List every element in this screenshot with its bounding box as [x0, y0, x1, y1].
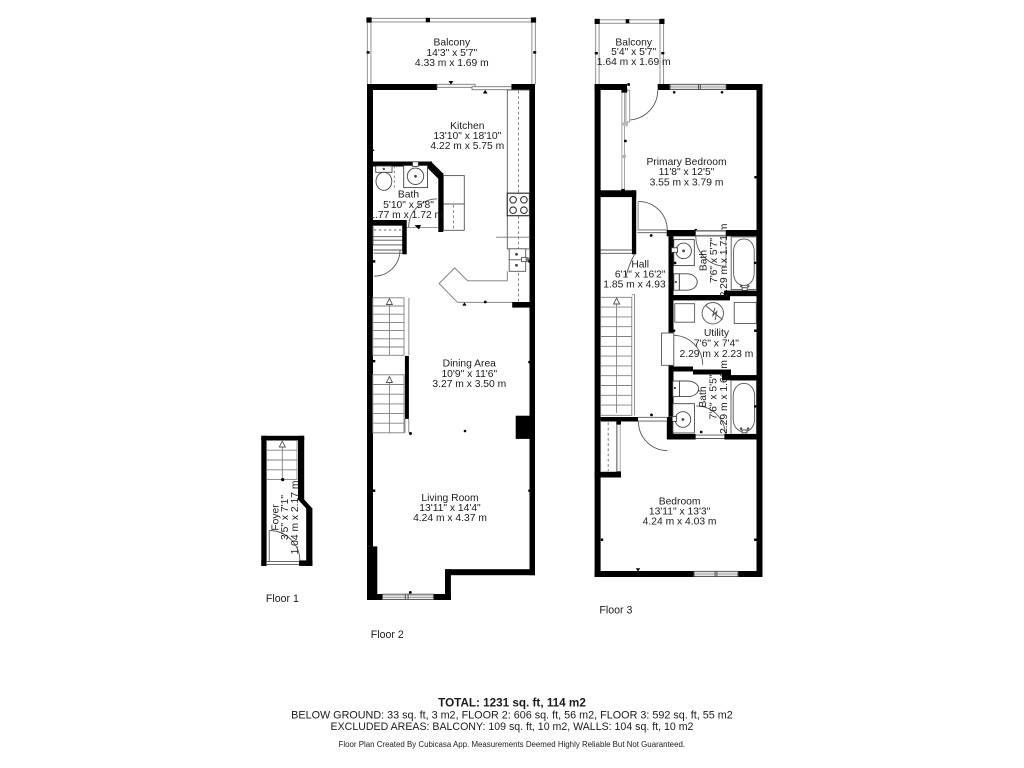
svg-text:Floor 1: Floor 1 — [266, 593, 299, 605]
svg-text:Floor 2: Floor 2 — [371, 629, 404, 641]
svg-text:Utility: Utility — [704, 328, 730, 339]
svg-text:2.29 m x 2.23 m: 2.29 m x 2.23 m — [679, 349, 753, 360]
svg-text:Floor 3: Floor 3 — [599, 605, 632, 617]
svg-text:Bath: Bath — [698, 386, 709, 407]
svg-text:1.77 m x 1.72 m: 1.77 m x 1.72 m — [369, 210, 443, 221]
svg-text:7'6" x 7'4": 7'6" x 7'4" — [694, 338, 739, 349]
svg-text:Floor Plan Created By Cubicasa: Floor Plan Created By Cubicasa App. Meas… — [339, 740, 686, 749]
svg-text:BELOW GROUND: 33 sq. ft, 3 m2,: BELOW GROUND: 33 sq. ft, 3 m2, FLOOR 2: … — [291, 709, 733, 721]
svg-text:4.22 m x 5.75 m: 4.22 m x 5.75 m — [430, 141, 504, 152]
svg-text:4.24 m x 4.37 m: 4.24 m x 4.37 m — [413, 513, 487, 524]
svg-text:4.24 m x 4.03 m: 4.24 m x 4.03 m — [643, 516, 717, 527]
svg-text:1.04 m x 2.17 m: 1.04 m x 2.17 m — [290, 481, 301, 555]
svg-text:3.27 m x 3.50 m: 3.27 m x 3.50 m — [432, 379, 506, 390]
svg-text:1.64 m x 1.69 m: 1.64 m x 1.69 m — [597, 57, 671, 68]
svg-text:TOTAL: 1231 sq. ft, 114 m2: TOTAL: 1231 sq. ft, 114 m2 — [438, 696, 586, 709]
svg-text:EXCLUDED AREAS: BALCONY: 109 s: EXCLUDED AREAS: BALCONY: 109 sq. ft, 10 … — [331, 721, 694, 733]
svg-text:7'6" x 5'5": 7'6" x 5'5" — [709, 374, 720, 419]
svg-text:3.55 m x 3.79 m: 3.55 m x 3.79 m — [650, 178, 724, 189]
svg-text:1.85 m x 4.93 m: 1.85 m x 4.93 m — [603, 280, 677, 291]
svg-text:4.33 m x 1.69 m: 4.33 m x 1.69 m — [415, 58, 489, 69]
